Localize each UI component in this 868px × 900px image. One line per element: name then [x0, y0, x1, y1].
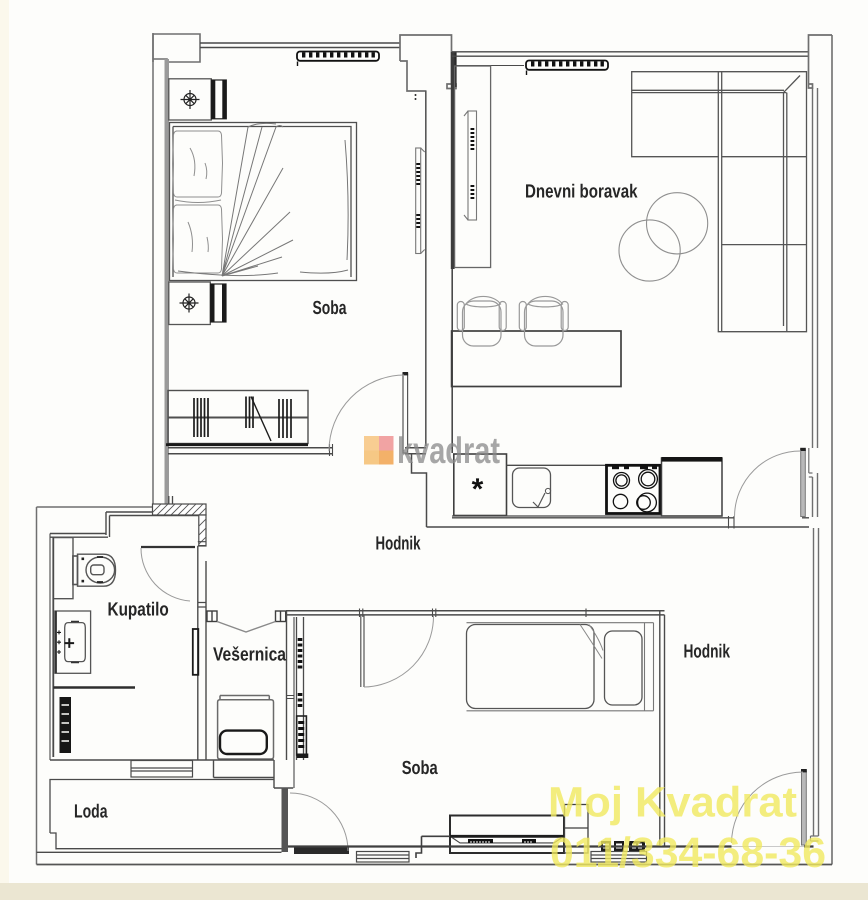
svg-text:Hodnik: Hodnik [684, 642, 731, 663]
svg-text:Dnevni boravak: Dnevni boravak [525, 182, 638, 203]
svg-text:*: * [472, 473, 484, 506]
svg-text:Vešernica: Vešernica [213, 645, 286, 666]
svg-text:Soba: Soba [313, 298, 347, 319]
svg-text:kvadrat: kvadrat [397, 430, 500, 471]
svg-text:Moj Kvadrat: Moj Kvadrat [548, 780, 797, 827]
svg-text:Kupatilo: Kupatilo [108, 599, 169, 620]
svg-text:011/334-68-36: 011/334-68-36 [550, 830, 826, 877]
svg-text:Soba: Soba [402, 758, 438, 779]
svg-text:Hodnik: Hodnik [376, 534, 421, 555]
svg-text:Loda: Loda [74, 802, 108, 823]
